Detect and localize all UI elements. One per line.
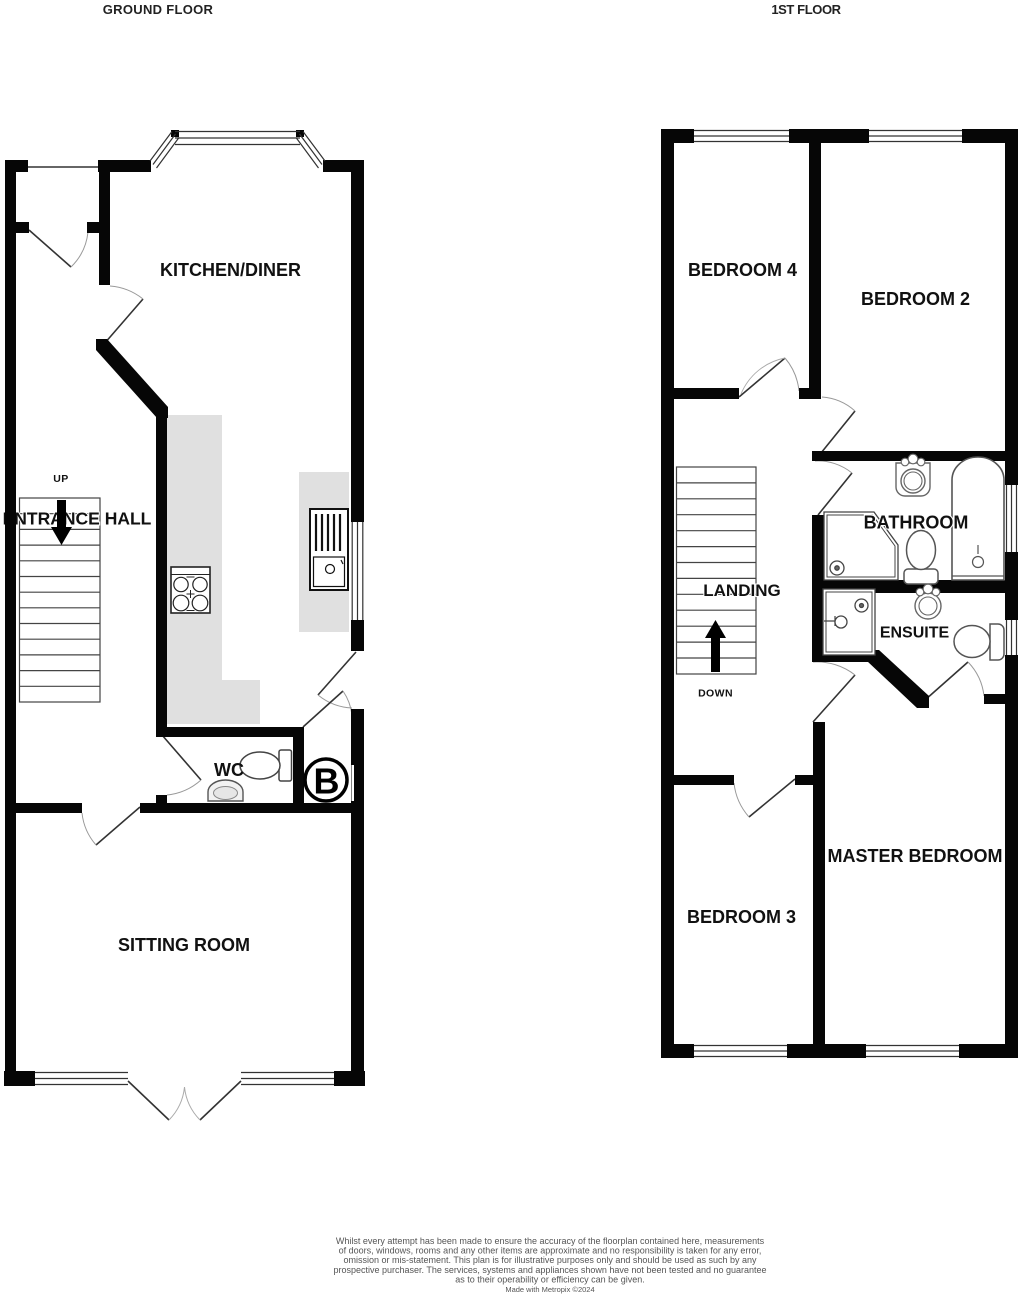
svg-text:UP: UP — [53, 473, 68, 485]
svg-text:KITCHEN/DINER: KITCHEN/DINER — [160, 260, 301, 280]
svg-text:ENSUITE: ENSUITE — [880, 625, 950, 642]
svg-text:prospective purchaser. The ser: prospective purchaser. The services, sys… — [333, 1265, 766, 1275]
svg-text:omission or mis-statement. Thi: omission or mis-statement. This plan is … — [343, 1255, 757, 1265]
svg-text:ENTRANCE HALL: ENTRANCE HALL — [3, 509, 152, 529]
svg-text:1ST FLOOR: 1ST FLOOR — [771, 2, 841, 17]
svg-text:B: B — [314, 761, 340, 802]
svg-text:WC: WC — [214, 760, 244, 780]
svg-text:GROUND FLOOR: GROUND FLOOR — [103, 2, 214, 17]
svg-text:BATHROOM: BATHROOM — [864, 513, 969, 533]
svg-text:BEDROOM 3: BEDROOM 3 — [687, 907, 796, 927]
svg-text:LANDING: LANDING — [703, 581, 780, 600]
svg-text:Made with Metropix ©2024: Made with Metropix ©2024 — [505, 1285, 594, 1294]
svg-text:BEDROOM 2: BEDROOM 2 — [861, 289, 970, 309]
svg-text:as to their operability or eff: as to their operability or efficiency ca… — [455, 1274, 644, 1284]
svg-text:of doors, windows, rooms and a: of doors, windows, rooms and any other i… — [339, 1246, 762, 1256]
svg-text:MASTER BEDROOM: MASTER BEDROOM — [828, 846, 1003, 866]
svg-text:Whilst every attempt has been: Whilst every attempt has been made to en… — [336, 1236, 765, 1246]
svg-text:DOWN: DOWN — [698, 688, 733, 700]
svg-text:SITTING ROOM: SITTING ROOM — [118, 935, 250, 955]
svg-text:BEDROOM 4: BEDROOM 4 — [688, 260, 797, 280]
